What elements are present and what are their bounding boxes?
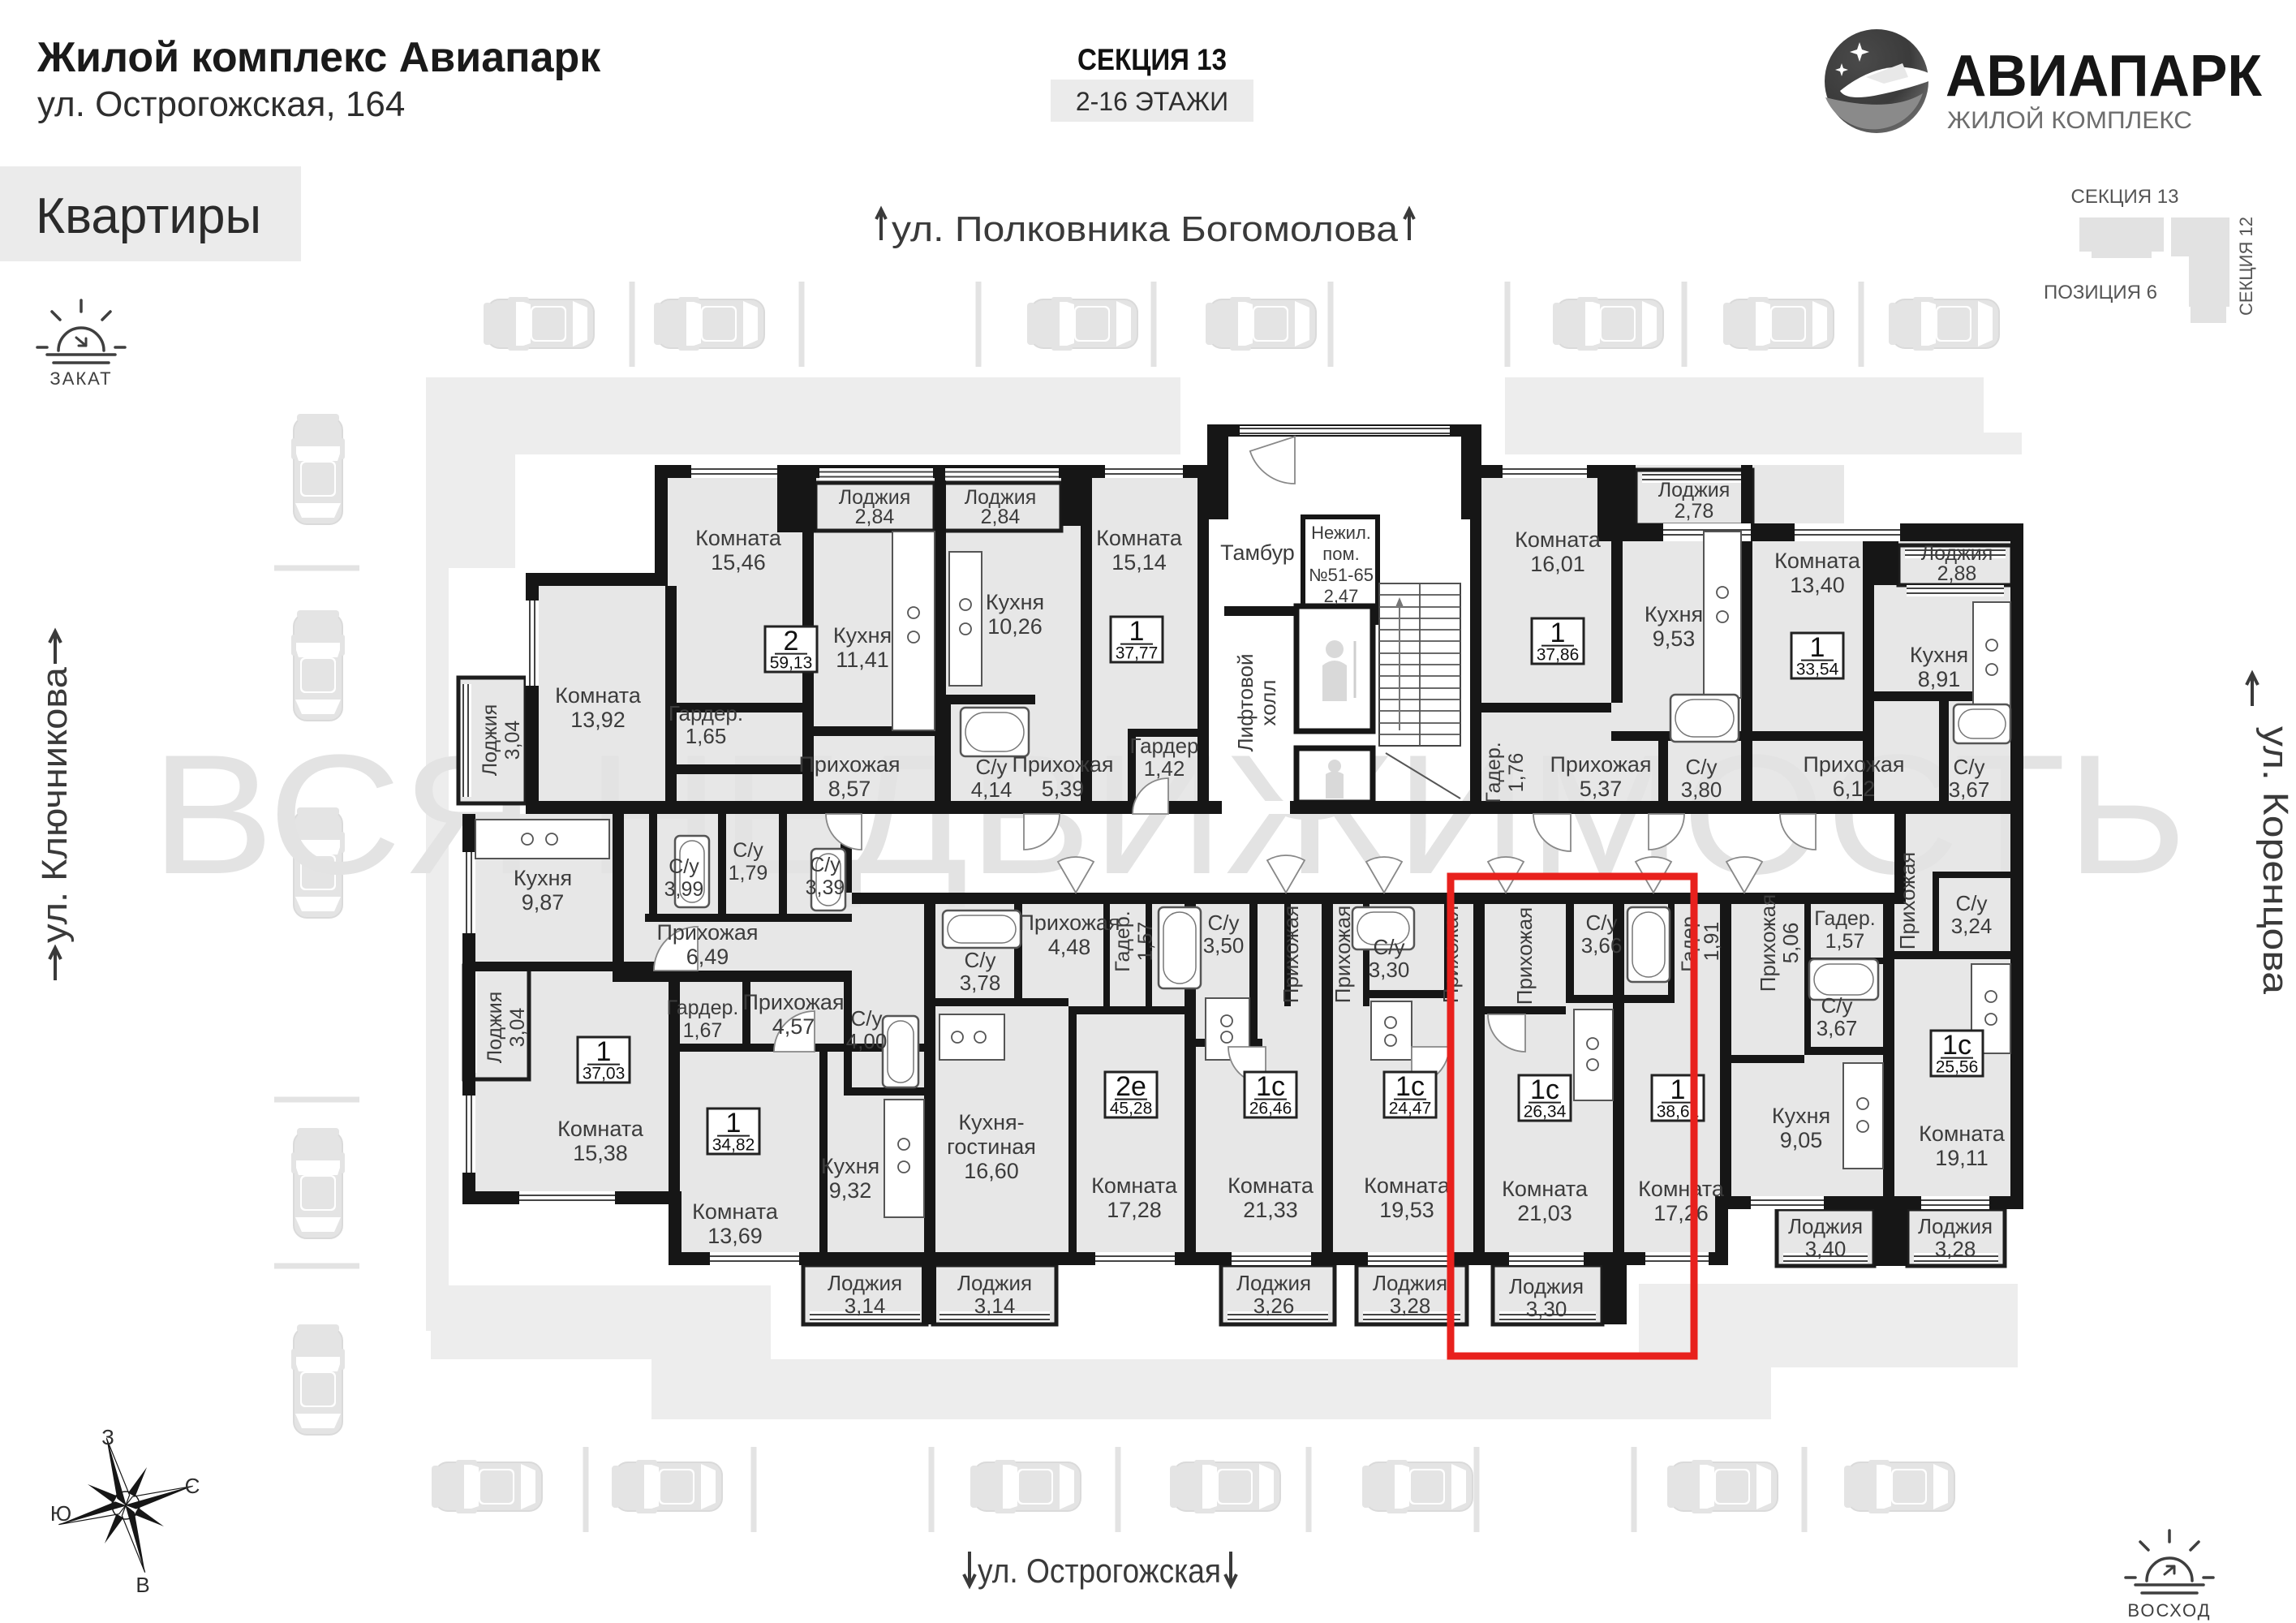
svg-text:10,26: 10,26 bbox=[987, 614, 1043, 639]
svg-text:Комната: Комната bbox=[1228, 1173, 1314, 1198]
svg-text:Прихожая: Прихожая bbox=[1018, 911, 1120, 935]
svg-text:С: С bbox=[185, 1474, 200, 1498]
svg-text:37,86: 37,86 bbox=[1537, 646, 1580, 665]
svg-text:4,57: 4,57 bbox=[772, 1014, 815, 1039]
svg-text:33,54: 33,54 bbox=[1796, 661, 1839, 679]
svg-text:3,30: 3,30 bbox=[1369, 958, 1410, 982]
svg-text:3,80: 3,80 bbox=[1681, 777, 1722, 802]
svg-text:17,28: 17,28 bbox=[1107, 1198, 1162, 1222]
svg-text:3,39: 3,39 bbox=[806, 876, 845, 899]
svg-text:ул. Полковника Богомолова: ул. Полковника Богомолова bbox=[892, 209, 1399, 249]
svg-text:С/у: С/у bbox=[965, 948, 996, 972]
svg-text:ПОЗИЦИЯ 6: ПОЗИЦИЯ 6 bbox=[2044, 282, 2157, 304]
svg-text:Кухня: Кухня bbox=[833, 623, 892, 648]
svg-text:3,99: 3,99 bbox=[664, 878, 704, 901]
svg-text:Гардер: Гардер bbox=[1129, 734, 1198, 758]
svg-text:ул. Острогожская, 164: ул. Острогожская, 164 bbox=[37, 84, 405, 124]
svg-text:Гардер.: Гардер. bbox=[669, 701, 743, 725]
svg-text:Лоджия: Лоджия bbox=[1788, 1214, 1863, 1238]
svg-text:3,04: 3,04 bbox=[506, 1008, 529, 1048]
svg-text:С/у: С/у bbox=[851, 1006, 883, 1031]
svg-text:3,14: 3,14 bbox=[974, 1294, 1016, 1318]
svg-text:2-16 ЭТАЖИ: 2-16 ЭТАЖИ bbox=[1076, 87, 1228, 116]
svg-text:З: З bbox=[101, 1425, 114, 1449]
svg-text:ул. Коренцова: ул. Коренцова bbox=[2255, 726, 2295, 995]
svg-text:Гардер.: Гардер. bbox=[667, 997, 739, 1019]
svg-text:1,67: 1,67 bbox=[683, 1019, 723, 1042]
svg-text:Комната: Комната bbox=[1515, 527, 1602, 552]
svg-text:Прихожая: Прихожая bbox=[1012, 752, 1113, 777]
svg-text:2,84: 2,84 bbox=[981, 506, 1021, 528]
svg-text:№51-65: №51-65 bbox=[1309, 565, 1374, 585]
svg-text:59,13: 59,13 bbox=[770, 654, 813, 673]
svg-text:Кухня: Кухня bbox=[1645, 602, 1703, 626]
svg-text:АВИАПАРК: АВИАПАРК bbox=[1946, 44, 2263, 109]
svg-text:2,84: 2,84 bbox=[855, 506, 895, 528]
svg-text:С/у: С/у bbox=[1586, 911, 1618, 935]
svg-text:5,06: 5,06 bbox=[1778, 923, 1803, 964]
svg-text:Нежил.: Нежил. bbox=[1311, 523, 1371, 543]
svg-text:Комната: Комната bbox=[1774, 549, 1861, 573]
svg-text:Лоджия: Лоджия bbox=[1236, 1271, 1311, 1295]
svg-text:Прихожая: Прихожая bbox=[1279, 906, 1303, 1003]
svg-text:3,67: 3,67 bbox=[1949, 777, 1990, 802]
svg-text:Комната: Комната bbox=[1091, 1173, 1178, 1198]
svg-text:Кухня: Кухня bbox=[514, 866, 572, 890]
svg-text:1: 1 bbox=[1550, 618, 1566, 648]
svg-text:Лоджия: Лоджия bbox=[1509, 1274, 1584, 1298]
svg-text:1,65: 1,65 bbox=[686, 724, 727, 748]
svg-text:9,32: 9,32 bbox=[829, 1178, 872, 1203]
svg-text:13,92: 13,92 bbox=[570, 708, 626, 732]
svg-text:Комната: Комната bbox=[555, 683, 642, 708]
svg-text:1с: 1с bbox=[1395, 1071, 1425, 1102]
svg-text:Гадер.: Гадер. bbox=[1482, 742, 1505, 803]
svg-text:37,77: 37,77 bbox=[1116, 644, 1159, 663]
svg-text:С/у: С/у bbox=[733, 839, 763, 862]
svg-text:Комната: Комната bbox=[557, 1117, 644, 1141]
svg-text:2,88: 2,88 bbox=[1937, 562, 1977, 585]
svg-text:11,41: 11,41 bbox=[836, 648, 889, 672]
svg-text:Прихожая: Прихожая bbox=[742, 990, 844, 1014]
svg-text:1,76: 1,76 bbox=[1505, 753, 1528, 793]
svg-text:СЕКЦИЯ 12: СЕКЦИЯ 12 bbox=[2236, 217, 2256, 316]
svg-text:Комната: Комната bbox=[692, 1199, 779, 1224]
svg-text:3,40: 3,40 bbox=[1805, 1237, 1847, 1261]
svg-text:1,91: 1,91 bbox=[1701, 922, 1723, 962]
svg-text:1: 1 bbox=[726, 1108, 742, 1139]
svg-text:С/у: С/у bbox=[669, 855, 699, 878]
svg-text:34,82: 34,82 bbox=[712, 1136, 755, 1155]
svg-text:С/у: С/у bbox=[1956, 891, 1988, 915]
svg-text:Кухня: Кухня bbox=[986, 590, 1044, 614]
svg-text:2,47: 2,47 bbox=[1324, 586, 1359, 606]
svg-text:8,91: 8,91 bbox=[1918, 667, 1961, 691]
svg-text:Кухня: Кухня bbox=[821, 1154, 879, 1178]
svg-text:Прихожая: Прихожая bbox=[1803, 752, 1904, 777]
svg-text:26,46: 26,46 bbox=[1249, 1100, 1292, 1118]
svg-text:1,79: 1,79 bbox=[729, 862, 768, 885]
svg-text:Прихожая: Прихожая bbox=[656, 920, 758, 945]
svg-text:Лоджия: Лоджия bbox=[1918, 1214, 1993, 1238]
svg-text:17,26: 17,26 bbox=[1653, 1201, 1709, 1225]
svg-text:С/у: С/у bbox=[1686, 755, 1718, 779]
svg-text:Прихожая: Прихожая bbox=[1331, 906, 1355, 1003]
svg-text:Комната: Комната bbox=[1096, 526, 1183, 550]
svg-text:24,47: 24,47 bbox=[1389, 1100, 1432, 1118]
svg-text:Кухня-: Кухня- bbox=[958, 1110, 1024, 1134]
svg-text:СЕКЦИЯ 13: СЕКЦИЯ 13 bbox=[1077, 43, 1227, 76]
svg-text:1: 1 bbox=[1129, 616, 1145, 647]
svg-text:СЕКЦИЯ 13: СЕКЦИЯ 13 bbox=[2070, 186, 2178, 208]
svg-text:21,33: 21,33 bbox=[1243, 1198, 1298, 1222]
svg-text:С/у: С/у bbox=[1954, 755, 1985, 779]
svg-text:1: 1 bbox=[1670, 1074, 1686, 1105]
svg-text:1,42: 1,42 bbox=[1144, 756, 1185, 781]
svg-text:ВОСХОД: ВОСХОД bbox=[2127, 1600, 2211, 1621]
svg-text:3,50: 3,50 bbox=[1203, 933, 1245, 958]
svg-text:26,34: 26,34 bbox=[1524, 1103, 1567, 1121]
svg-text:6,12: 6,12 bbox=[1833, 777, 1876, 801]
svg-text:4,00: 4,00 bbox=[846, 1029, 888, 1053]
svg-text:3,67: 3,67 bbox=[1817, 1016, 1858, 1040]
svg-text:Прихожая: Прихожая bbox=[798, 752, 900, 777]
svg-text:9,05: 9,05 bbox=[1780, 1128, 1823, 1152]
svg-text:25,56: 25,56 bbox=[1936, 1058, 1979, 1077]
svg-text:ул. Острогожская: ул. Острогожская bbox=[978, 1552, 1221, 1590]
svg-text:3,30: 3,30 bbox=[1526, 1297, 1567, 1321]
svg-text:16,60: 16,60 bbox=[964, 1159, 1019, 1183]
svg-text:Лоджия: Лоджия bbox=[484, 992, 506, 1064]
svg-text:Прихожая: Прихожая bbox=[1512, 907, 1537, 1005]
svg-text:Комната: Комната bbox=[1364, 1173, 1451, 1198]
svg-text:С/у: С/у bbox=[810, 854, 841, 876]
svg-text:Прихожая: Прихожая bbox=[1756, 894, 1780, 992]
svg-text:В: В bbox=[135, 1573, 149, 1597]
svg-text:9,87: 9,87 bbox=[522, 890, 565, 915]
svg-text:21,03: 21,03 bbox=[1517, 1201, 1572, 1225]
svg-text:Лоджия: Лоджия bbox=[1921, 542, 1993, 565]
svg-text:1,57: 1,57 bbox=[1134, 922, 1157, 962]
svg-text:8,57: 8,57 bbox=[828, 777, 871, 801]
svg-text:4,48: 4,48 bbox=[1048, 935, 1091, 959]
svg-text:4,14: 4,14 bbox=[971, 777, 1013, 802]
svg-text:1с: 1с bbox=[1530, 1074, 1559, 1105]
svg-text:ул. Ключникова: ул. Ключникова bbox=[35, 666, 75, 943]
svg-text:Прихожая: Прихожая bbox=[1550, 752, 1651, 777]
svg-text:15,38: 15,38 bbox=[573, 1141, 628, 1165]
svg-text:16,01: 16,01 bbox=[1530, 552, 1585, 576]
svg-text:3,78: 3,78 bbox=[960, 971, 1001, 995]
svg-text:Прихожая: Прихожая bbox=[1895, 852, 1920, 949]
svg-text:3,24: 3,24 bbox=[1951, 914, 1993, 938]
svg-text:Лоджия: Лоджия bbox=[479, 704, 501, 777]
svg-text:Комната: Комната bbox=[1919, 1121, 2006, 1146]
svg-text:Комната: Комната bbox=[1638, 1177, 1725, 1201]
svg-text:1с: 1с bbox=[1256, 1071, 1285, 1102]
svg-text:гостиная: гостиная bbox=[947, 1134, 1036, 1159]
svg-text:1с: 1с bbox=[1942, 1030, 1971, 1061]
svg-text:1: 1 bbox=[1810, 632, 1825, 663]
svg-text:Гадер.: Гадер. bbox=[1111, 911, 1134, 971]
svg-text:37,03: 37,03 bbox=[583, 1065, 626, 1083]
svg-text:Комната: Комната bbox=[695, 526, 782, 550]
svg-text:С/у: С/у bbox=[976, 755, 1008, 779]
svg-text:С/у: С/у bbox=[1208, 911, 1240, 935]
svg-text:15,46: 15,46 bbox=[711, 550, 766, 575]
svg-text:Жилой комплекс Авиапарк: Жилой комплекс Авиапарк bbox=[37, 34, 601, 81]
svg-text:3,04: 3,04 bbox=[501, 721, 524, 760]
svg-text:19,53: 19,53 bbox=[1379, 1198, 1434, 1222]
svg-text:Комната: Комната bbox=[1502, 1177, 1589, 1201]
svg-text:19,11: 19,11 bbox=[1935, 1146, 1989, 1170]
svg-text:1,57: 1,57 bbox=[1825, 930, 1865, 953]
svg-text:пом.: пом. bbox=[1322, 544, 1359, 564]
svg-text:Лоджия: Лоджия bbox=[957, 1271, 1032, 1295]
svg-text:3,26: 3,26 bbox=[1253, 1294, 1295, 1318]
svg-text:С/у: С/у bbox=[1374, 935, 1405, 959]
svg-text:3,14: 3,14 bbox=[845, 1294, 886, 1318]
svg-text:ЖИЛОЙ КОМПЛЕКС: ЖИЛОЙ КОМПЛЕКС bbox=[1947, 106, 2192, 134]
svg-text:5,39: 5,39 bbox=[1042, 777, 1085, 801]
svg-text:6,49: 6,49 bbox=[686, 945, 729, 969]
svg-text:Гадер.: Гадер. bbox=[1814, 907, 1875, 930]
svg-text:Кухня: Кухня bbox=[1772, 1104, 1830, 1128]
svg-text:3,28: 3,28 bbox=[1935, 1237, 1976, 1261]
svg-text:Лоджия: Лоджия bbox=[1373, 1271, 1447, 1295]
svg-text:Кухня: Кухня bbox=[1910, 643, 1968, 667]
svg-text:2е: 2е bbox=[1116, 1071, 1146, 1102]
svg-text:ЗАКАТ: ЗАКАТ bbox=[49, 368, 112, 389]
svg-text:Тамбур: Тамбур bbox=[1220, 540, 1295, 565]
svg-text:1: 1 bbox=[596, 1036, 612, 1067]
svg-text:Квартиры: Квартиры bbox=[36, 188, 261, 244]
svg-text:Лоджия: Лоджия bbox=[828, 1271, 902, 1295]
svg-text:Ю: Ю bbox=[50, 1501, 71, 1526]
svg-text:9,53: 9,53 bbox=[1653, 626, 1696, 651]
svg-text:3,28: 3,28 bbox=[1390, 1294, 1431, 1318]
svg-text:13,69: 13,69 bbox=[707, 1224, 763, 1248]
svg-text:холл: холл bbox=[1256, 680, 1280, 726]
svg-text:Лифтовой: Лифтовой bbox=[1233, 654, 1258, 752]
svg-text:15,14: 15,14 bbox=[1111, 550, 1167, 575]
svg-text:13,40: 13,40 bbox=[1790, 573, 1845, 597]
svg-text:2: 2 bbox=[784, 626, 799, 657]
svg-text:2,78: 2,78 bbox=[1675, 500, 1714, 523]
svg-text:Лоджия: Лоджия bbox=[1658, 479, 1731, 502]
svg-text:5,37: 5,37 bbox=[1580, 777, 1623, 801]
svg-text:3,66: 3,66 bbox=[1581, 933, 1623, 958]
svg-text:45,28: 45,28 bbox=[1110, 1100, 1153, 1118]
svg-text:С/у: С/у bbox=[1821, 993, 1853, 1018]
